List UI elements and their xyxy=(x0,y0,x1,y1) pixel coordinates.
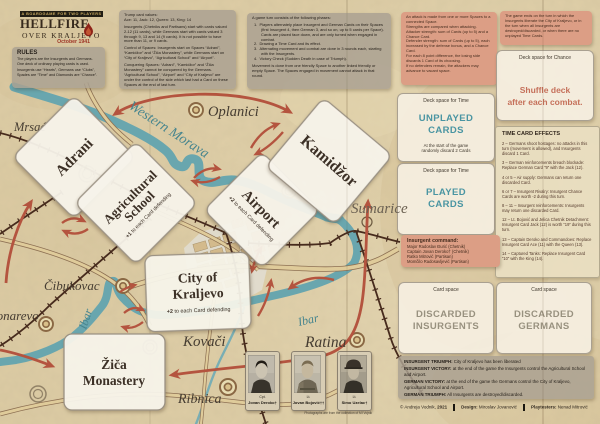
svg-text:Kovači: Kovači xyxy=(182,334,226,350)
svg-text:Oplanici: Oplanici xyxy=(208,104,259,120)
svg-text:Čibukovac: Čibukovac xyxy=(44,278,100,293)
svg-text:City ofKraljevo: City ofKraljevo xyxy=(172,269,224,302)
svg-text:Konarevo: Konarevo xyxy=(0,308,39,323)
svg-text:Ratina: Ratina xyxy=(304,334,347,351)
svg-text:Ribnica: Ribnica xyxy=(177,392,222,407)
